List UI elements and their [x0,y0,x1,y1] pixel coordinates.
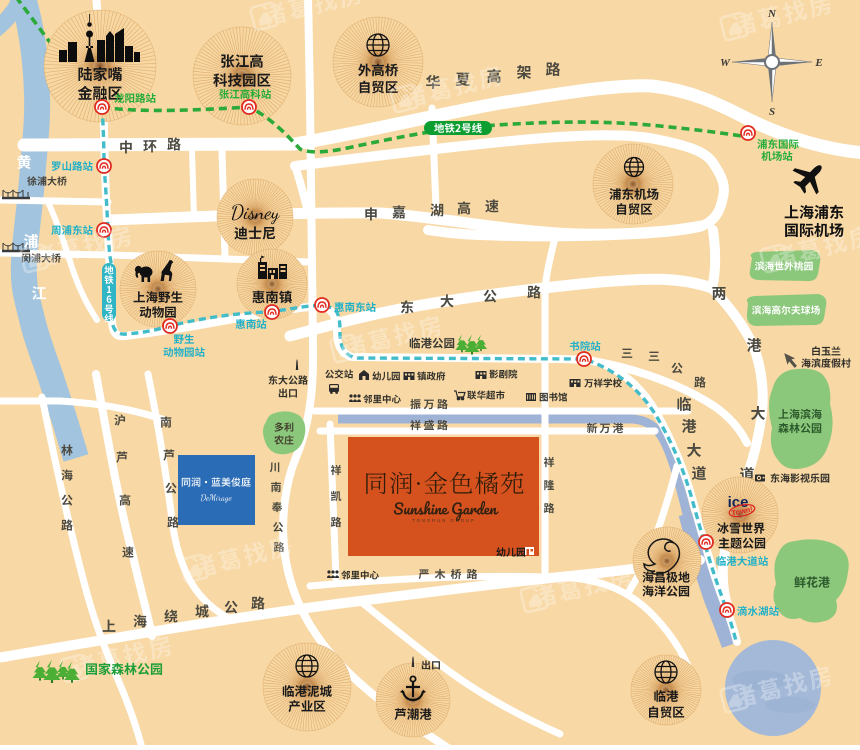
svg-text:N: N [767,8,777,20]
svg-text:E: E [814,57,822,69]
svg-text:TONGRUN GROUP: TONGRUN GROUP [412,518,476,523]
svg-text:W: W [720,57,731,69]
svg-text:S: S [769,106,775,118]
